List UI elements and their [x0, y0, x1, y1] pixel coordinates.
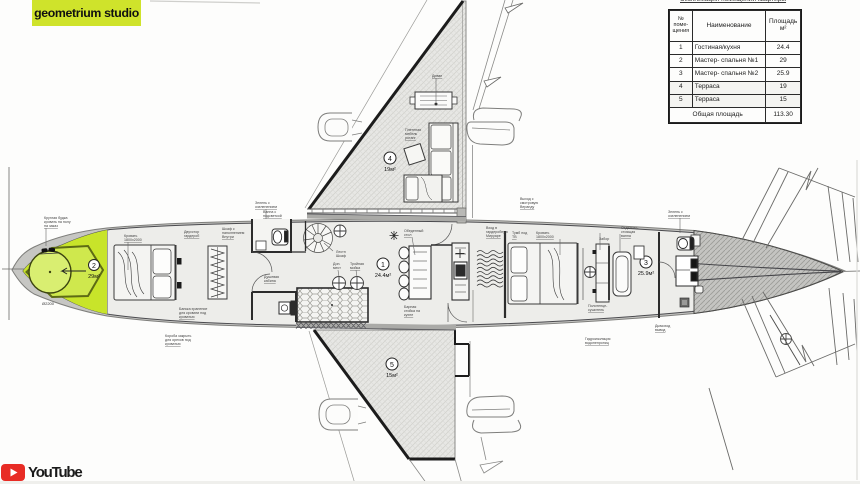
svg-text:Диван: Диван: [432, 74, 442, 78]
svg-text:29м²: 29м²: [88, 274, 100, 280]
svg-text:5: 5: [390, 362, 394, 369]
svg-text:4: 4: [388, 156, 392, 163]
svg-text:Шкаф: Шкаф: [336, 254, 346, 258]
svg-text:Веранду: Веранду: [520, 205, 534, 209]
svg-text:кабина: кабина: [264, 279, 276, 283]
svg-text:сушитель: сушитель: [588, 308, 604, 312]
svg-text:25.9м²: 25.9м²: [638, 271, 654, 277]
svg-text:кроватью: кроватью: [179, 315, 195, 319]
svg-text:озеленением: озеленением: [668, 214, 691, 218]
svg-text:Внутри: Внутри: [222, 235, 234, 239]
svg-text:1: 1: [381, 262, 385, 269]
svg-text:2: 2: [92, 263, 96, 270]
svg-text:на заказ: на заказ: [44, 224, 58, 228]
svg-text:Мируаре: Мируаре: [486, 234, 501, 238]
svg-text:ТВ: ТВ: [512, 235, 517, 239]
svg-text:озеленением: озеленением: [255, 205, 278, 209]
svg-text:15м²: 15м²: [386, 373, 398, 379]
svg-text:вывод: вывод: [655, 328, 666, 332]
svg-text:стол: стол: [404, 233, 411, 237]
svg-text:Забор: Забор: [599, 237, 609, 241]
svg-text:водонепрониц: водонепрониц: [585, 341, 609, 345]
svg-text:мойка: мойка: [350, 266, 360, 270]
svg-text:1800х2000: 1800х2000: [536, 235, 554, 239]
svg-text:ванна: ванна: [621, 234, 631, 238]
svg-text:мест: мест: [333, 266, 341, 270]
svg-text:3: 3: [644, 260, 648, 267]
svg-text:ротанг: ротанг: [405, 136, 417, 140]
svg-text:Ø2200: Ø2200: [42, 301, 55, 306]
svg-text:1800х2000: 1800х2000: [124, 238, 142, 242]
svg-text:гардероб: гардероб: [184, 234, 199, 238]
svg-text:кроватью: кроватью: [165, 342, 181, 346]
svg-text:19м²: 19м²: [384, 167, 396, 173]
svg-text:24.4м²: 24.4м²: [375, 273, 391, 279]
svg-text:кухне: кухне: [404, 313, 413, 317]
